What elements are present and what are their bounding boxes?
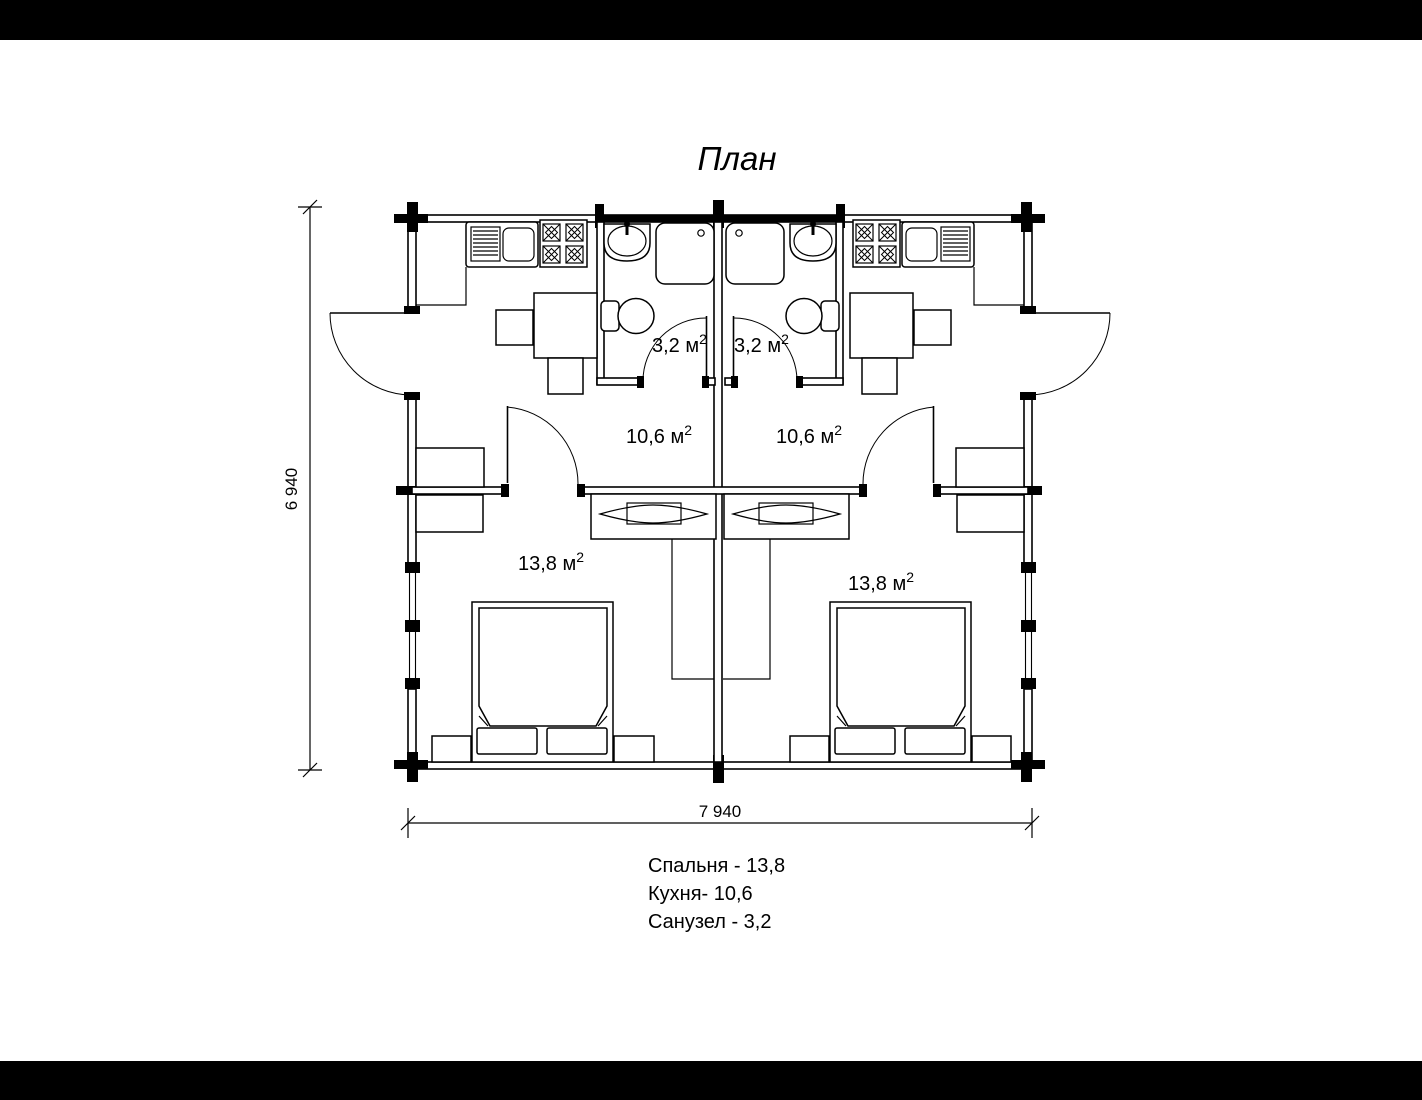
closet-right: [723, 539, 770, 679]
area-label-bedroom-right: 13,8 м2: [848, 569, 914, 595]
stove-right: [853, 220, 900, 267]
stove-left: [540, 220, 587, 267]
washbasin-right: [790, 221, 836, 261]
shower-right: [726, 223, 784, 284]
bedroom-door-left: [507, 406, 578, 484]
closet-left: [672, 539, 714, 679]
nightstand-left-east: [614, 736, 654, 762]
chair-right-south: [862, 358, 897, 394]
worktop-edge-right: [974, 267, 1024, 305]
nightstand-right-east: [972, 736, 1011, 762]
sink-counter-left: [466, 222, 538, 267]
shower-left: [656, 223, 714, 284]
bathroom-left: [601, 221, 714, 334]
area-label-kitchen-right: 10,6 м2: [776, 422, 842, 448]
area-label-bathroom-right: 3,2 м2: [734, 331, 789, 357]
entry-door-left: [330, 306, 420, 400]
toilet-left: [601, 299, 654, 334]
wardrobe-right-lower: [957, 495, 1024, 532]
legend: Спальня - 13,8 Кухня- 10,6 Санузел - 3,2: [648, 855, 785, 933]
entry-door-right: [1020, 306, 1110, 400]
chair-left-west: [496, 310, 533, 345]
pillow-left-2: [547, 728, 607, 754]
wardrobe-center-left: [591, 494, 716, 539]
area-label-kitchen-left: 10,6 м2: [626, 422, 692, 448]
table-right: [850, 293, 913, 358]
floor-plan-svg: План: [0, 0, 1422, 1100]
kitchen-right: [850, 220, 1024, 487]
toilet-right: [786, 299, 839, 334]
pillow-right-1: [835, 728, 895, 754]
plan-title: План: [697, 140, 776, 177]
dimension-height-label: 6 940: [282, 468, 301, 511]
legend-kitchen: Кухня- 10,6: [648, 883, 753, 905]
window-right: [1021, 562, 1036, 689]
bed-right: [830, 602, 971, 762]
pillow-left-1: [477, 728, 537, 754]
dimension-width-label: 7 940: [699, 802, 742, 821]
legend-bathroom: Санузел - 3,2: [648, 911, 772, 933]
chair-left-south: [548, 358, 583, 394]
area-label-bathroom-left: 3,2 м2: [652, 331, 707, 357]
bathroom-right: [726, 221, 839, 334]
pillow-right-2: [905, 728, 965, 754]
log-corner-bottom-right: [1011, 752, 1045, 782]
log-corner-top-right: [1011, 202, 1045, 232]
chair-right-east: [914, 310, 951, 345]
log-corner-top-left: [394, 202, 428, 232]
wardrobe-left-lower: [416, 495, 483, 532]
nightstand-left-west: [432, 736, 471, 762]
area-label-bedroom-left: 13,8 м2: [518, 549, 584, 575]
bedroom-door-right: [863, 406, 934, 484]
bed-left: [472, 602, 613, 762]
legend-bedroom: Спальня - 13,8: [648, 855, 785, 877]
window-left: [405, 562, 420, 689]
dimension-horizontal: 7 940: [401, 802, 1039, 838]
table-left: [534, 293, 597, 358]
nightstand-right-west: [790, 736, 829, 762]
washbasin-left: [604, 221, 650, 261]
worktop-edge-left: [416, 267, 466, 305]
dimension-vertical: 6 940: [282, 200, 322, 777]
wardrobe-center-right: [724, 494, 849, 539]
sink-counter-right: [902, 222, 974, 267]
cabinet-left-upper: [416, 448, 484, 487]
kitchen-left: [416, 220, 597, 487]
log-corner-bottom-left: [394, 752, 428, 782]
cabinet-right-upper: [956, 448, 1024, 487]
